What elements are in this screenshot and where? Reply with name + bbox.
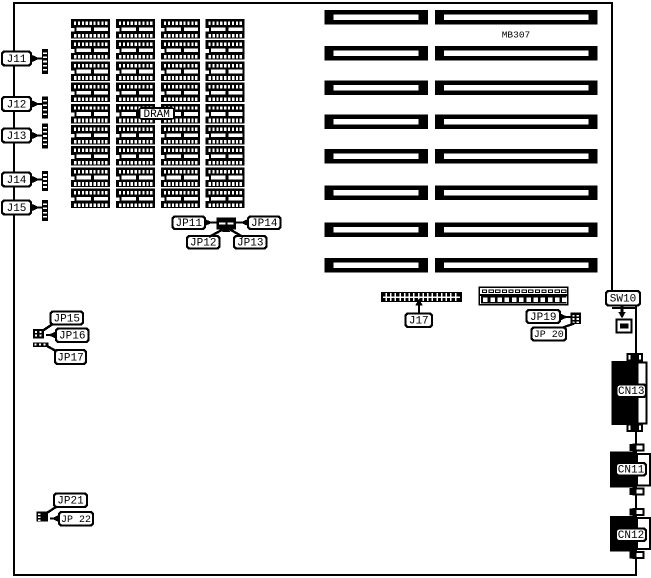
svg-text:JP14: JP14 [251,218,278,230]
svg-text:J12: J12 [7,99,27,111]
svg-text:J17: J17 [409,316,429,328]
svg-text:JP15: JP15 [54,313,80,325]
svg-text:JP13: JP13 [237,238,263,250]
svg-text:JP19: JP19 [530,312,556,324]
svg-text:J14: J14 [7,175,27,187]
svg-text:J15: J15 [7,203,27,215]
svg-text:JP 20: JP 20 [534,330,564,341]
svg-text:MB307: MB307 [502,30,531,41]
svg-text:JP11: JP11 [176,218,203,230]
svg-text:DRAM: DRAM [143,109,169,121]
svg-text:SW10: SW10 [610,294,636,306]
svg-text:JP21: JP21 [57,496,84,508]
svg-text:J13: J13 [7,131,27,143]
svg-text:CN13: CN13 [618,386,644,398]
svg-text:JP12: JP12 [190,238,216,250]
svg-text:JP 22: JP 22 [61,515,91,526]
svg-text:JP16: JP16 [59,331,85,343]
svg-text:JP17: JP17 [57,352,83,364]
svg-text:CN11: CN11 [618,465,645,477]
svg-text:J11: J11 [7,54,27,66]
svg-text:CN12: CN12 [618,530,644,542]
